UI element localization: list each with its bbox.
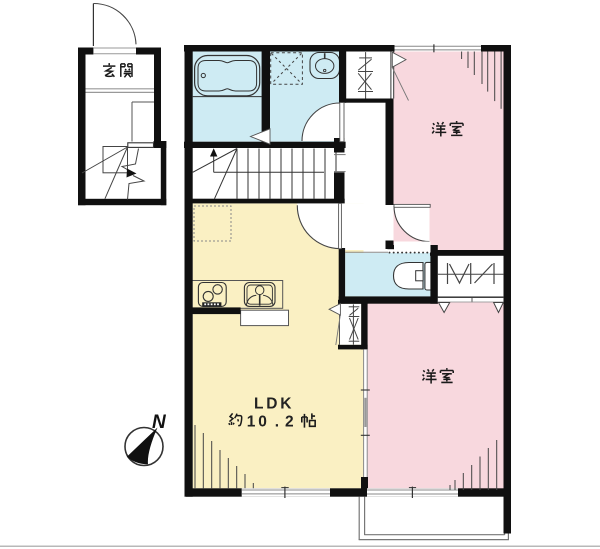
svg-text:K: K [280, 396, 292, 413]
svg-text:2: 2 [285, 414, 294, 431]
svg-text:0: 0 [258, 414, 267, 431]
svg-text:L: L [254, 396, 263, 413]
svg-text:1: 1 [247, 414, 256, 431]
svg-text:D: D [266, 396, 277, 413]
svg-text:.: . [275, 414, 279, 431]
svg-text:N: N [152, 412, 167, 433]
